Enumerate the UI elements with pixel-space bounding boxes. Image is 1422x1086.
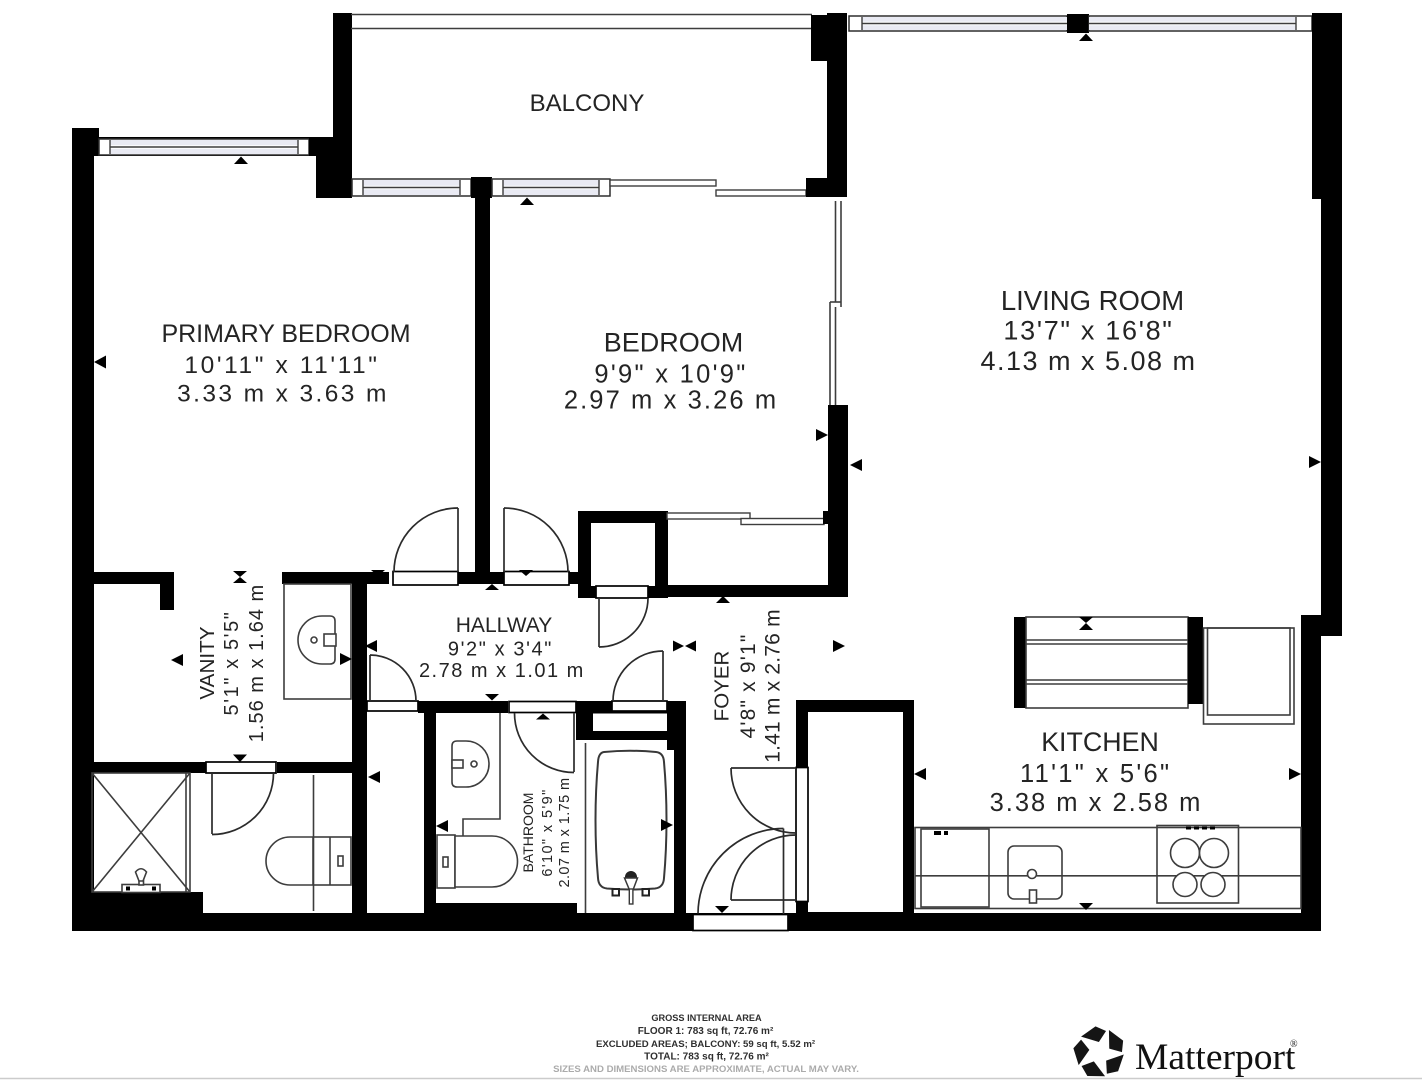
svg-text:BEDROOM: BEDROOM [604, 328, 744, 358]
svg-text:10'11" x 11'11": 10'11" x 11'11" [184, 352, 379, 379]
svg-text:9'9" x 10'9": 9'9" x 10'9" [594, 361, 747, 389]
svg-text:TOTAL: 783 sq ft, 72.76 m²: TOTAL: 783 sq ft, 72.76 m² [644, 1052, 769, 1063]
svg-text:13'7" x 16'8": 13'7" x 16'8" [1003, 316, 1173, 346]
svg-text:FOYER: FOYER [711, 651, 734, 722]
svg-text:VANITY: VANITY [196, 626, 219, 699]
svg-text:HALLWAY: HALLWAY [456, 614, 552, 637]
svg-text:1.56 m x 1.64 m: 1.56 m x 1.64 m [246, 584, 268, 742]
svg-text:2.07 m x 1.75 m: 2.07 m x 1.75 m [557, 778, 573, 888]
svg-text:PRIMARY BEDROOM: PRIMARY BEDROOM [161, 320, 410, 348]
svg-text:11'1" x 5'6": 11'1" x 5'6" [1020, 760, 1171, 788]
svg-text:2.78 m x 1.01 m: 2.78 m x 1.01 m [419, 660, 585, 682]
svg-text:BALCONY: BALCONY [530, 90, 645, 117]
svg-text:FLOOR 1: 783 sq ft, 72.76 m²: FLOOR 1: 783 sq ft, 72.76 m² [638, 1026, 774, 1037]
svg-text:1.41 m x 2.76 m: 1.41 m x 2.76 m [762, 609, 785, 763]
svg-text:SIZES AND DIMENSIONS ARE APPRO: SIZES AND DIMENSIONS ARE APPROXIMATE, AC… [553, 1064, 859, 1075]
svg-text:4'8" x 9'1": 4'8" x 9'1" [737, 633, 760, 738]
svg-text:GROSS INTERNAL AREA: GROSS INTERNAL AREA [651, 1013, 762, 1023]
svg-text:6'10" x 5'9": 6'10" x 5'9" [540, 788, 556, 876]
svg-text:KITCHEN: KITCHEN [1041, 727, 1159, 757]
svg-text:2.97 m x 3.26 m: 2.97 m x 3.26 m [564, 387, 778, 415]
svg-text:3.33 m x 3.63 m: 3.33 m x 3.63 m [177, 381, 389, 408]
svg-text:Matterport: Matterport [1135, 1037, 1296, 1078]
svg-text:3.38 m x 2.58 m: 3.38 m x 2.58 m [990, 789, 1203, 817]
svg-text:4.13 m x 5.08 m: 4.13 m x 5.08 m [980, 346, 1196, 376]
svg-text:EXCLUDED AREAS; BALCONY: 59 sq: EXCLUDED AREAS; BALCONY: 59 sq ft, 5.52 … [596, 1039, 815, 1050]
svg-text:9'2" x 3'4": 9'2" x 3'4" [448, 639, 553, 661]
svg-text:5'1" x 5'5": 5'1" x 5'5" [221, 610, 243, 715]
svg-text:LIVING ROOM: LIVING ROOM [1001, 285, 1184, 316]
svg-text:®: ® [1290, 1039, 1298, 1050]
svg-text:BATHROOM: BATHROOM [520, 793, 536, 873]
